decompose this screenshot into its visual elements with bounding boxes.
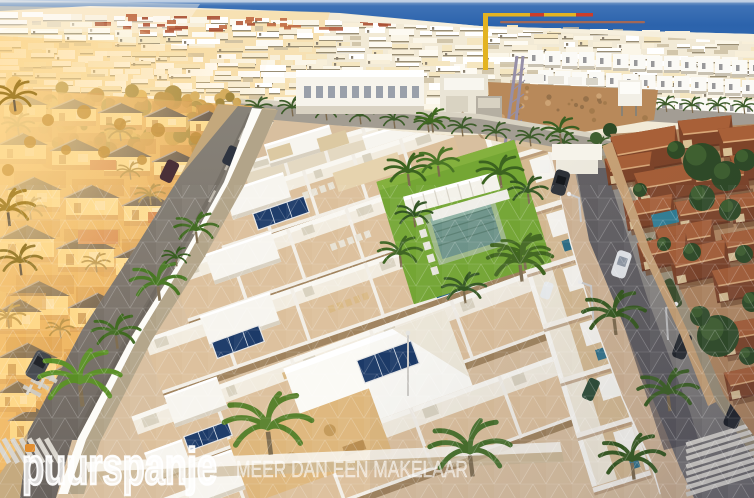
svg-text:MEER DAN EEN MAKELAAR: MEER DAN EEN MAKELAAR bbox=[236, 456, 468, 482]
svg-text:puurspanje: puurspanje bbox=[22, 438, 217, 496]
